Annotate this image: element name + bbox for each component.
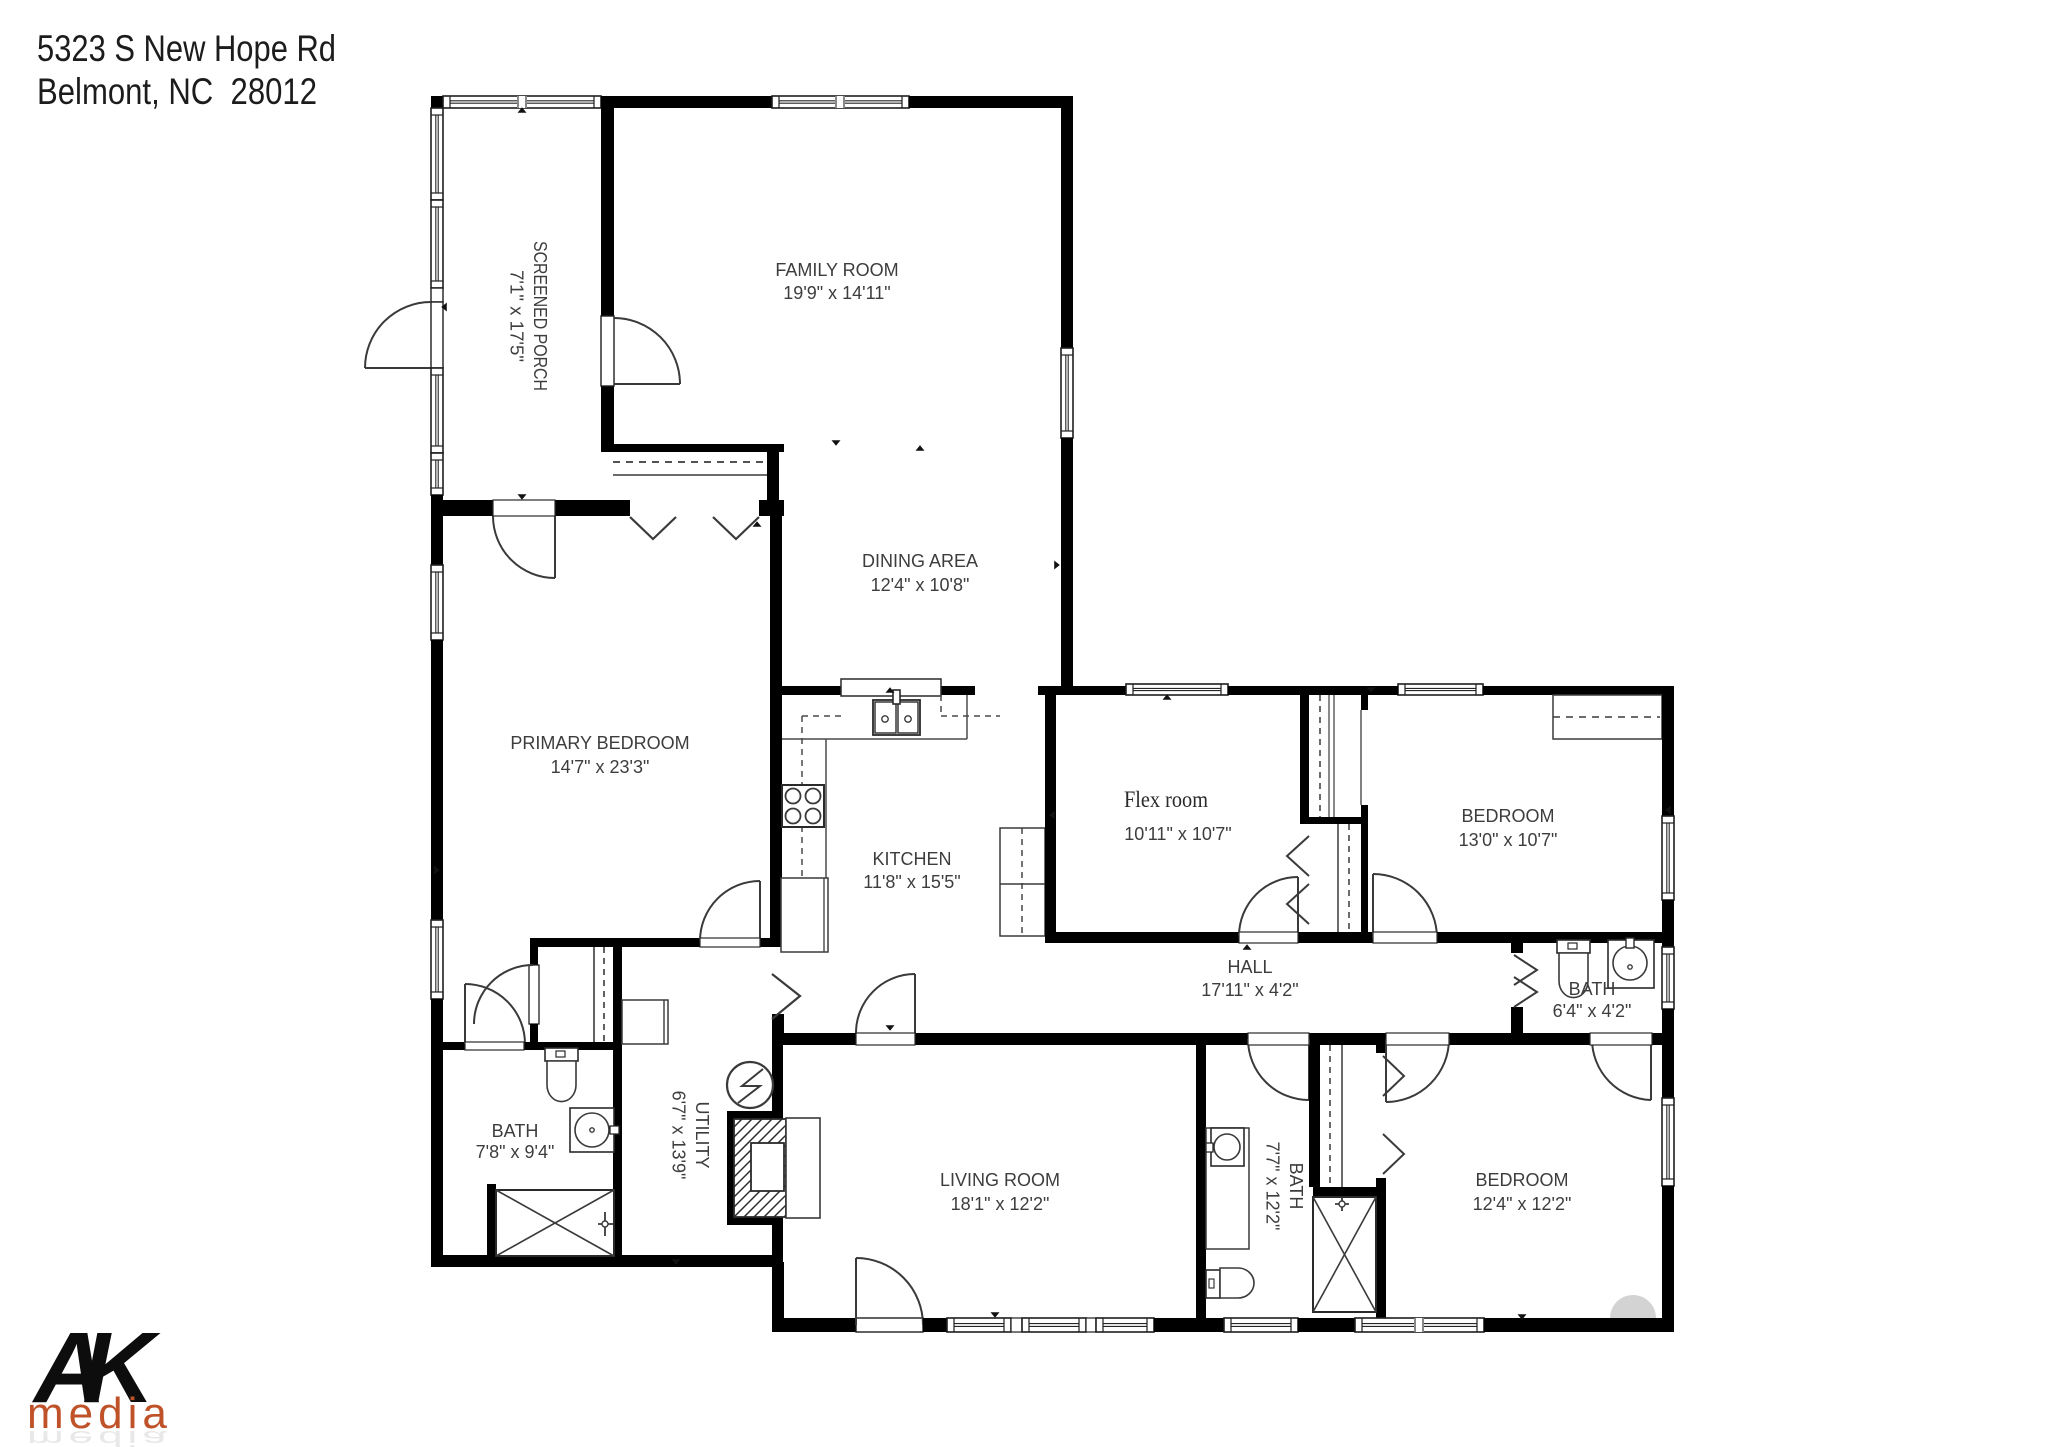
svg-text:13'0" x 10'7": 13'0" x 10'7"	[1459, 830, 1558, 850]
svg-text:UTILITY: UTILITY	[692, 1101, 712, 1168]
svg-text:HALL: HALL	[1227, 957, 1272, 977]
svg-text:BEDROOM: BEDROOM	[1461, 806, 1554, 826]
svg-text:BATH: BATH	[492, 1121, 539, 1141]
svg-text:SCREENED PORCH: SCREENED PORCH	[530, 241, 550, 391]
svg-text:12'4" x 10'8": 12'4" x 10'8"	[871, 575, 970, 595]
svg-text:BATH: BATH	[1286, 1163, 1306, 1210]
svg-text:17'11" x 4'2": 17'11" x 4'2"	[1201, 980, 1298, 1000]
svg-text:7'7" x 12'2": 7'7" x 12'2"	[1263, 1142, 1283, 1231]
svg-text:18'1" x 12'2": 18'1" x 12'2"	[951, 1194, 1050, 1214]
svg-text:BEDROOM: BEDROOM	[1475, 1170, 1568, 1190]
svg-text:10'11" x 10'7": 10'11" x 10'7"	[1124, 824, 1231, 844]
svg-text:DINING AREA: DINING AREA	[862, 551, 978, 571]
svg-text:FAMILY ROOM: FAMILY ROOM	[775, 260, 898, 280]
svg-text:19'9" x 14'11": 19'9" x 14'11"	[783, 283, 890, 303]
svg-text:11'8" x 15'5": 11'8" x 15'5"	[863, 872, 960, 892]
svg-text:BATH: BATH	[1569, 979, 1616, 999]
svg-text:7'8" x 9'4": 7'8" x 9'4"	[476, 1142, 555, 1162]
svg-text:12'4" x 12'2": 12'4" x 12'2"	[1473, 1194, 1572, 1214]
svg-text:KITCHEN: KITCHEN	[872, 849, 951, 869]
svg-text:Flex room: Flex room	[1124, 787, 1208, 812]
svg-text:Belmont, NC 28012: Belmont, NC 28012	[37, 71, 317, 112]
svg-text:PRIMARY BEDROOM: PRIMARY BEDROOM	[510, 733, 689, 753]
svg-text:LIVING ROOM: LIVING ROOM	[940, 1170, 1060, 1190]
svg-text:6'4" x 4'2": 6'4" x 4'2"	[1553, 1001, 1632, 1021]
svg-text:14'7" x 23'3": 14'7" x 23'3"	[551, 757, 650, 777]
svg-text:5323 S New Hope Rd: 5323 S New Hope Rd	[37, 28, 336, 69]
svg-text:6'7" x 13'9": 6'7" x 13'9"	[669, 1091, 689, 1180]
svg-text:media: media	[27, 1426, 172, 1447]
svg-text:7'1" x 17'5": 7'1" x 17'5"	[507, 270, 527, 362]
